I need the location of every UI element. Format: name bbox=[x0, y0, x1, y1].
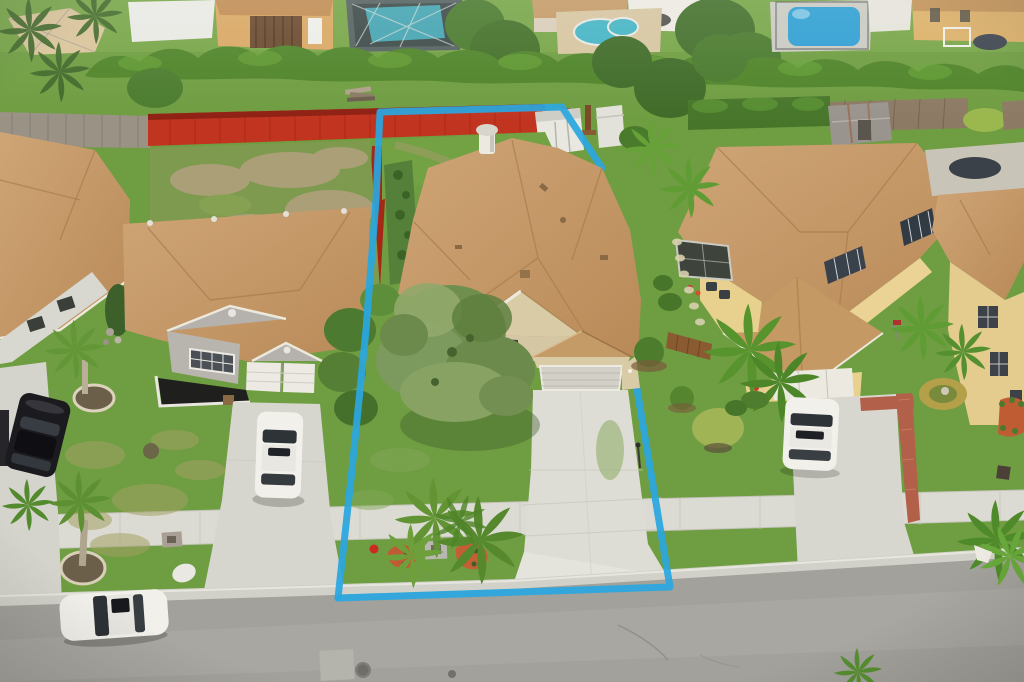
aerial-photo: Overhead aerial photo of a suburban sing… bbox=[0, 0, 1024, 682]
aerial-photo-canvas bbox=[0, 0, 1024, 682]
vignette-overlay bbox=[0, 0, 1024, 682]
